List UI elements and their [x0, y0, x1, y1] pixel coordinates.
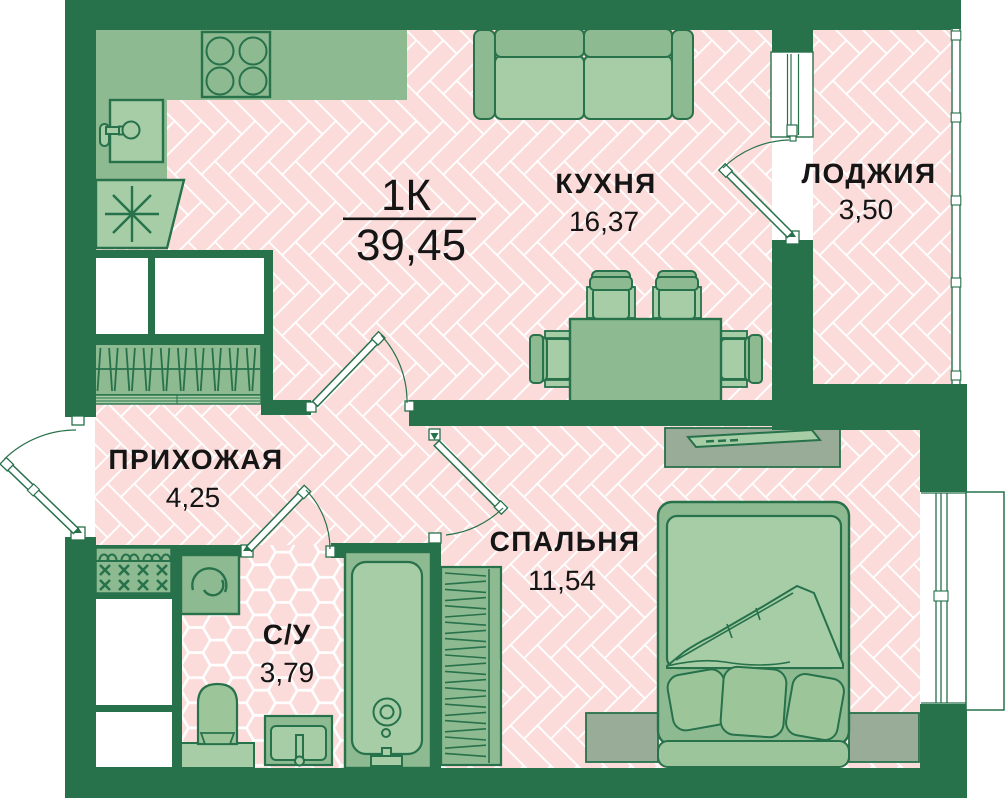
svg-text:4,25: 4,25 [166, 482, 221, 513]
svg-text:11,54: 11,54 [528, 565, 596, 596]
svg-text:1К: 1К [381, 171, 431, 220]
svg-text:С/У: С/У [263, 619, 311, 650]
svg-text:ЛОДЖИЯ: ЛОДЖИЯ [802, 158, 937, 189]
svg-text:КУХНЯ: КУХНЯ [555, 168, 656, 199]
svg-text:3,79: 3,79 [260, 657, 315, 688]
svg-text:3,50: 3,50 [839, 194, 894, 225]
svg-text:СПАЛЬНЯ: СПАЛЬНЯ [490, 526, 641, 557]
svg-text:16,37: 16,37 [569, 206, 639, 237]
svg-text:39,45: 39,45 [356, 221, 466, 270]
svg-text:ПРИХОЖАЯ: ПРИХОЖАЯ [108, 444, 283, 475]
